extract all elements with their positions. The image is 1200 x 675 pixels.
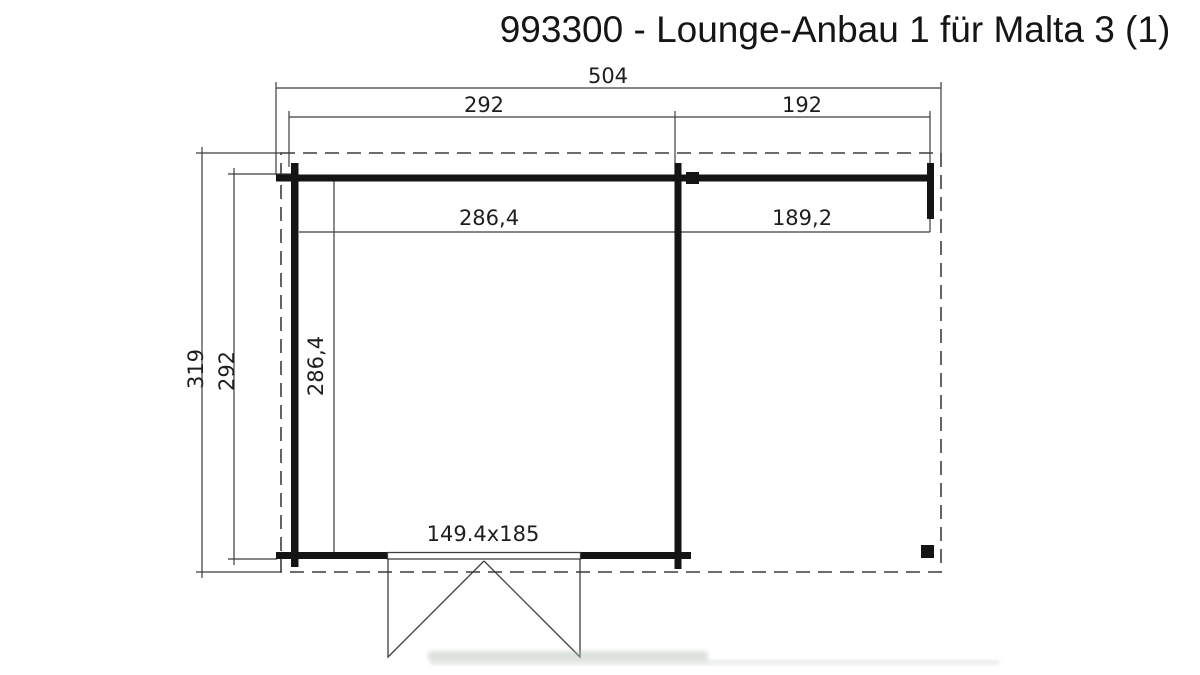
door-frame xyxy=(388,553,581,560)
watermark-smudge xyxy=(430,660,1000,665)
dim-label-annex-width: 192 xyxy=(752,95,852,115)
floor-plan-page: 993300 - Lounge-Anbau 1 für Malta 3 (1) xyxy=(0,0,1200,675)
wall-top xyxy=(276,175,934,182)
dim-label-total-depth: 319 xyxy=(186,329,206,409)
dim-label-cabin-width: 292 xyxy=(434,95,534,115)
double-door xyxy=(388,553,581,658)
dim-label-annex-inner-width: 189,2 xyxy=(752,208,852,228)
dim-label-cabin-inner-depth: 286,4 xyxy=(306,326,326,406)
door-leaf-right xyxy=(484,559,580,657)
wall-left xyxy=(291,163,299,567)
dim-label-total-width: 504 xyxy=(558,66,658,86)
post-top-right xyxy=(927,163,934,219)
post-bottom-right xyxy=(921,545,934,558)
beam-block xyxy=(686,172,699,184)
dim-label-door-size: 149.4x185 xyxy=(408,524,558,544)
wall-bottom-left xyxy=(276,552,387,559)
wall-middle xyxy=(675,163,682,569)
floor-plan-drawing xyxy=(0,0,1200,675)
door-leaf-left xyxy=(388,559,484,657)
dim-label-cabin-depth: 292 xyxy=(217,331,237,411)
wall-bottom-right xyxy=(581,552,691,559)
dim-label-cabin-inner-width: 286,4 xyxy=(439,208,539,228)
